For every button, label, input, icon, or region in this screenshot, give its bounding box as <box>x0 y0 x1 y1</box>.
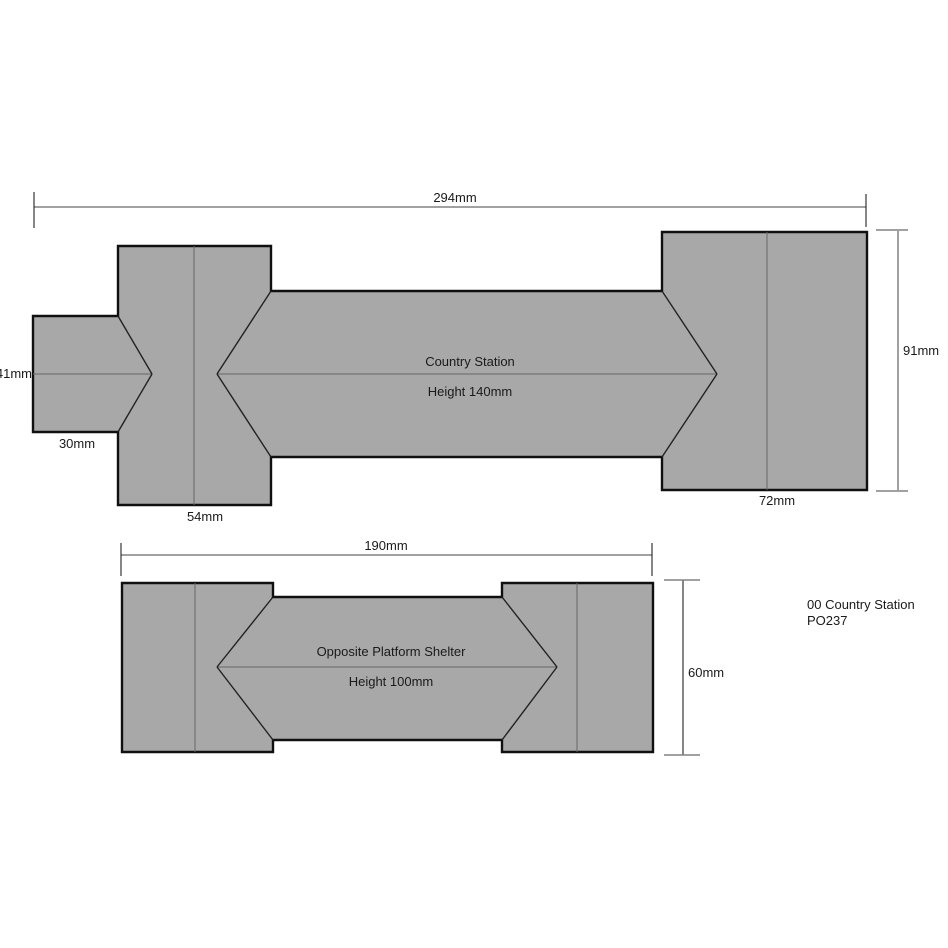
station-footprint: 294mm 91mm 41mm 30mm 54mm 72mm <box>0 190 939 524</box>
kit-caption-line1: 00 Country Station <box>807 597 915 612</box>
station-height-dimension-label: 91mm <box>903 343 939 358</box>
station-width-dimension-label: 294mm <box>433 190 476 205</box>
shelter-height-note: Height 100mm <box>349 674 434 689</box>
kit-caption: 00 Country Station PO237 <box>807 597 915 628</box>
station-right-wing-width-label: 72mm <box>759 493 795 508</box>
station-porch-depth-label: 41mm <box>0 366 32 381</box>
station-porch-width-label: 30mm <box>59 436 95 451</box>
footprint-diagram: 294mm 91mm 41mm 30mm 54mm 72mm <box>0 0 948 948</box>
station-height-note: Height 140mm <box>428 384 513 399</box>
shelter-name-label: Opposite Platform Shelter <box>317 644 467 659</box>
station-name-label: Country Station <box>425 354 515 369</box>
shelter-footprint: 190mm 60mm Opposite Platform Shelter Hei… <box>121 538 724 755</box>
station-left-wing-width-label: 54mm <box>187 509 223 524</box>
kit-caption-line2: PO237 <box>807 613 847 628</box>
shelter-width-dimension-label: 190mm <box>364 538 407 553</box>
shelter-depth-dimension-label: 60mm <box>688 665 724 680</box>
plan-sheet: 294mm 91mm 41mm 30mm 54mm 72mm <box>0 0 948 948</box>
